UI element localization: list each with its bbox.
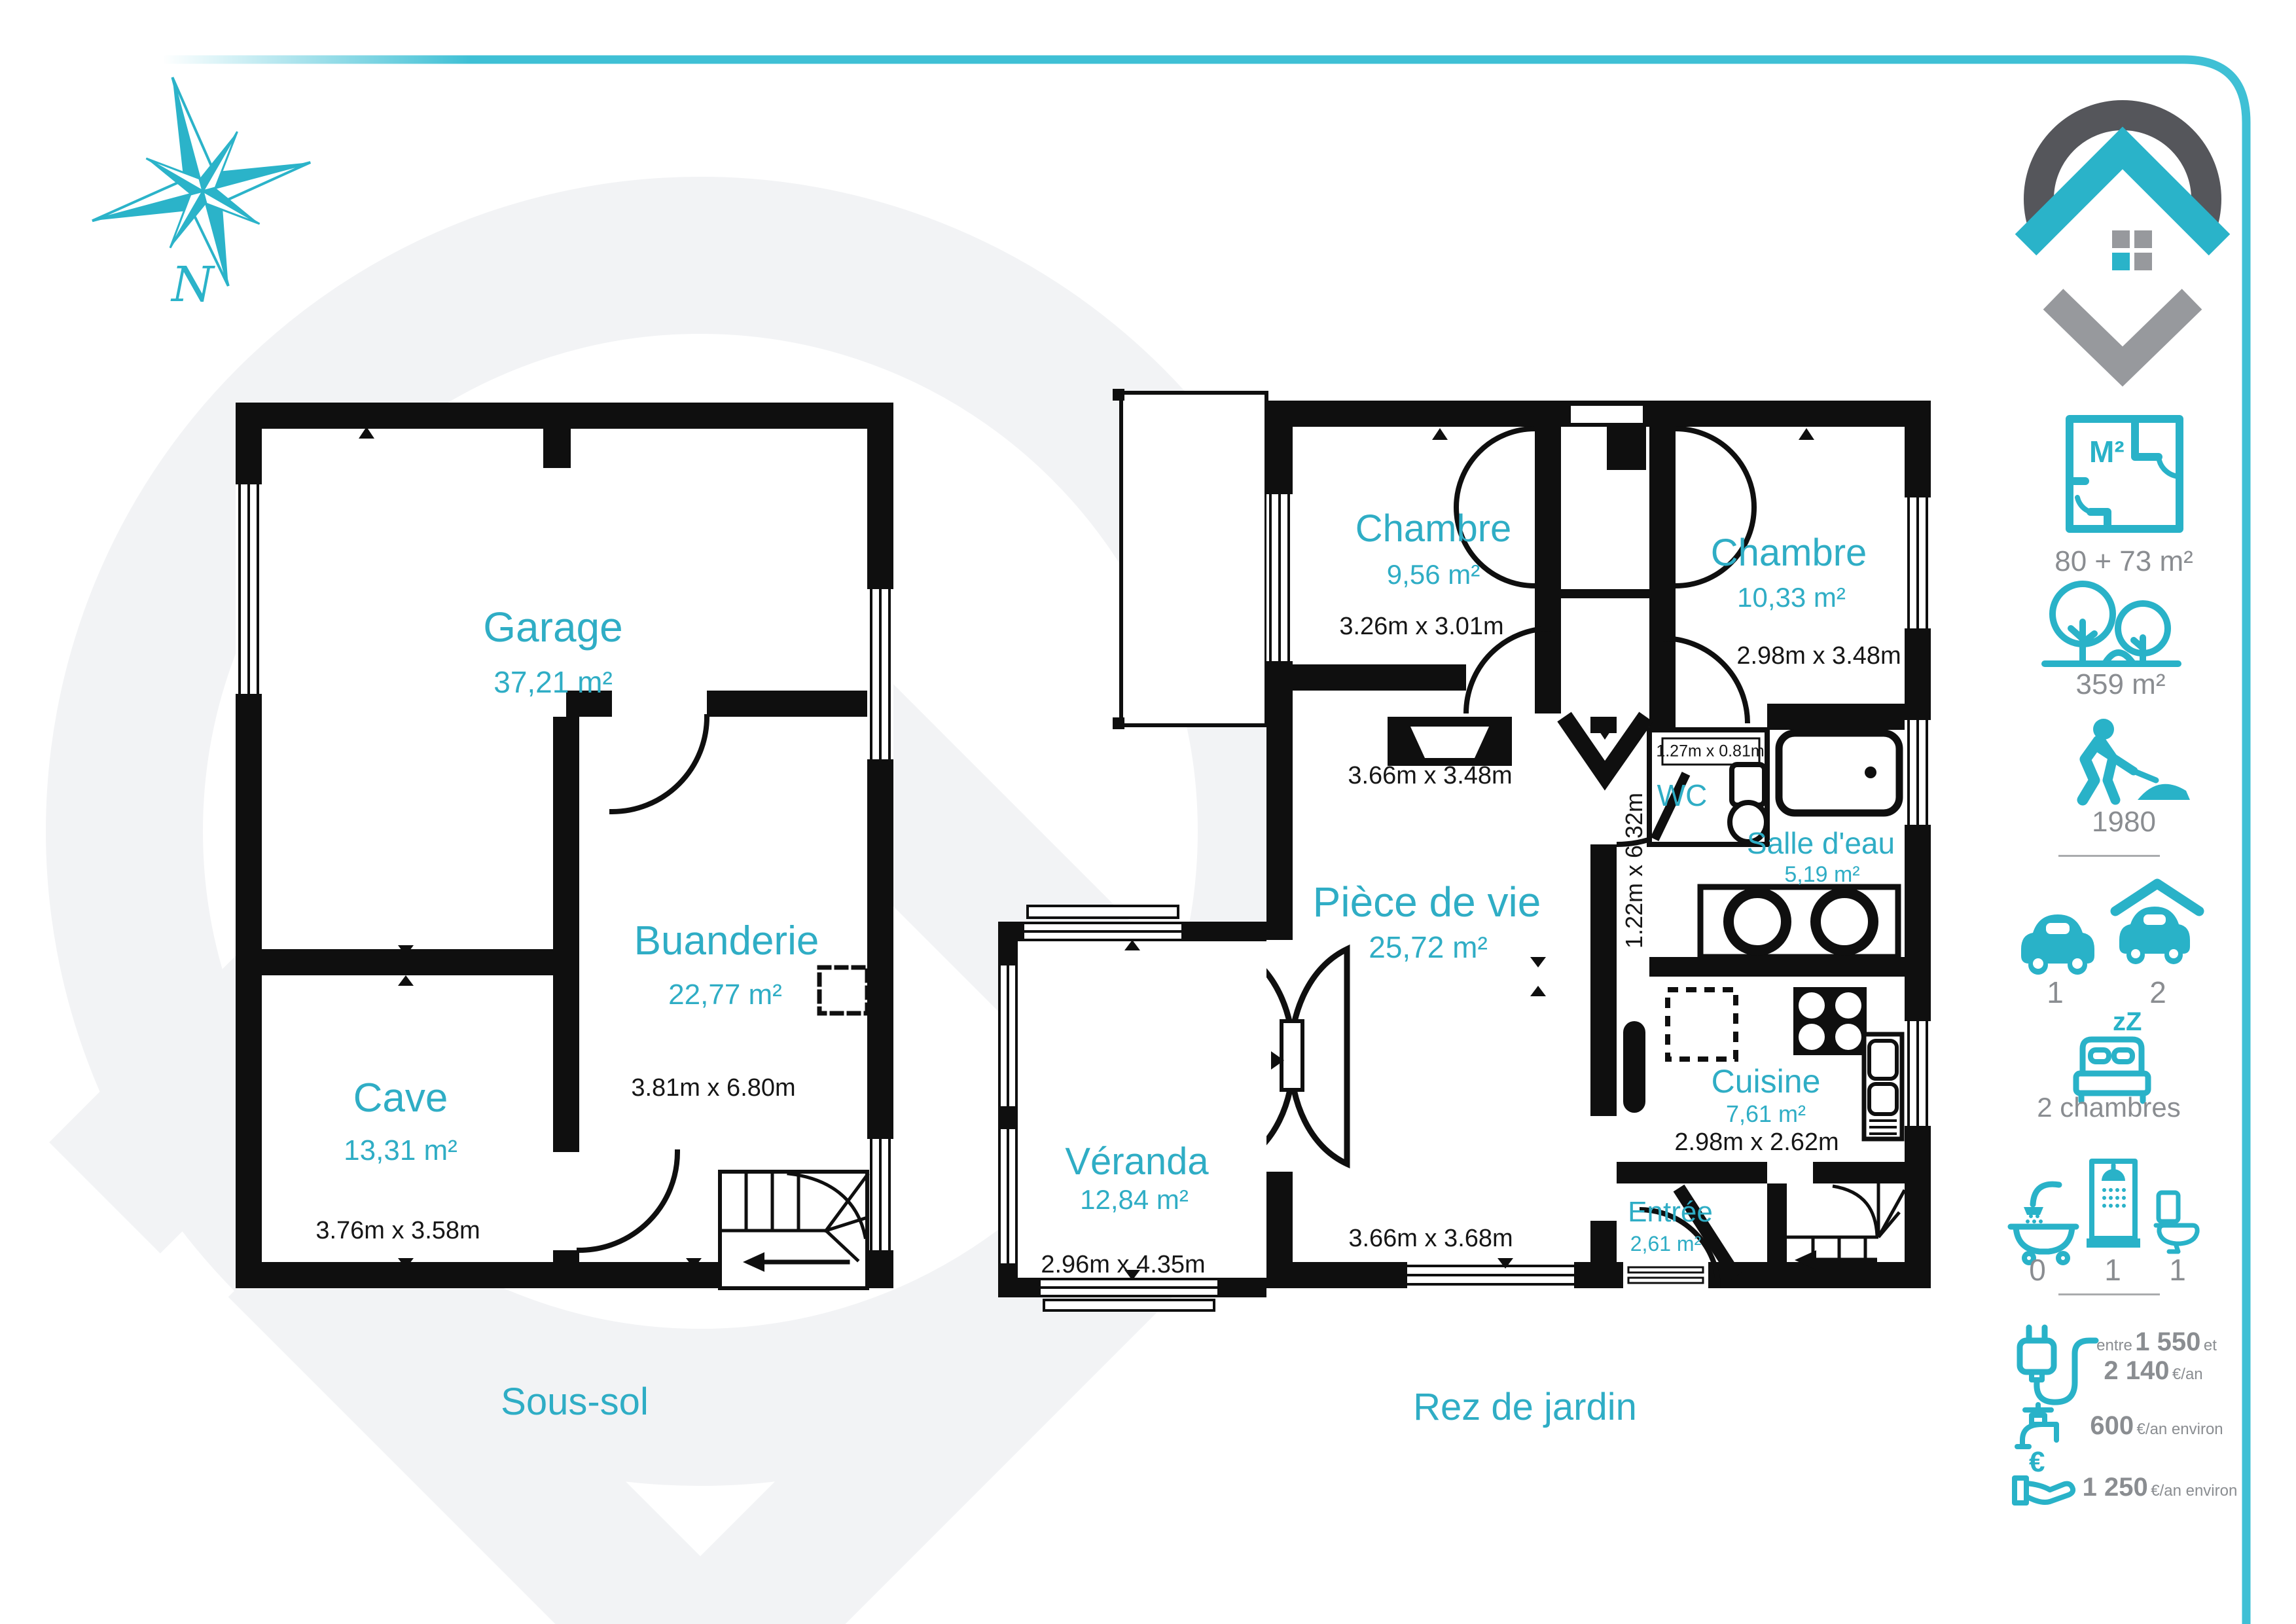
land-area-value: 359 m² xyxy=(2076,670,2166,699)
energy-low: 1 550 xyxy=(2135,1327,2200,1356)
room-label-buanderie: Buanderie xyxy=(634,921,819,962)
room-dim-cave: 3.76m x 3.58m xyxy=(315,1218,480,1243)
tax-cost: 1 250 €/an environ xyxy=(2083,1474,2238,1500)
garden-trees-icon xyxy=(2045,584,2178,664)
room-label-chambre1: Chambre xyxy=(1355,510,1512,548)
compass-north-label: N xyxy=(170,257,215,313)
room-dim-chambre2: 2.98m x 3.48m xyxy=(1736,643,1901,668)
car-icon xyxy=(2021,914,2094,975)
sidebar-divider-2 xyxy=(2058,1293,2160,1295)
floorplan-page: N xyxy=(0,0,2296,1624)
floor-title-sous-sol: Sous-sol xyxy=(501,1383,649,1421)
room-area-piece-de-vie: 25,72 m² xyxy=(1369,932,1488,962)
room-area-garage: 37,21 m² xyxy=(493,667,613,697)
room-label-wc: WC xyxy=(1657,780,1708,810)
construction-year-value: 1980 xyxy=(2092,808,2156,837)
room-area-buanderie: 22,77 m² xyxy=(668,981,782,1009)
energy-conj: et xyxy=(2204,1337,2217,1354)
room-area-entree: 2,61 m² xyxy=(1630,1233,1701,1254)
room-dim-cuisine: 2.98m x 2.62m xyxy=(1674,1130,1839,1155)
room-area-chambre1: 9,56 m² xyxy=(1387,561,1480,588)
toilet-count: 1 xyxy=(2169,1255,2186,1285)
bathtub-count: 0 xyxy=(2029,1255,2046,1285)
water-cost: 600 €/an environ xyxy=(2090,1413,2223,1439)
sidebar-divider-1 xyxy=(2058,855,2160,857)
electricity-plug-icon xyxy=(2020,1327,2096,1402)
room-label-chambre2: Chambre xyxy=(1711,534,1867,572)
floorplan-icon: M² xyxy=(2070,419,2179,529)
water-value: 600 xyxy=(2090,1411,2134,1440)
room-dim-piece-top: 3.66m x 3.48m xyxy=(1348,763,1512,788)
room-label-cuisine: Cuisine xyxy=(1712,1065,1821,1098)
energy-high: 2 140 xyxy=(2104,1356,2169,1385)
toilet-icon xyxy=(2156,1193,2197,1252)
bathtub-fixture xyxy=(1779,733,1899,813)
construction-year-icon xyxy=(2083,719,2190,800)
svg-text:M²: M² xyxy=(2089,435,2125,469)
veranda-structure xyxy=(998,906,1266,1310)
money-hand-icon: € xyxy=(2015,1446,2073,1503)
door-leaf-capsule xyxy=(1623,1021,1645,1113)
energy-unit: €/an xyxy=(2172,1365,2203,1383)
kitchen-sink-icon xyxy=(1864,1034,1902,1139)
garage-car-icon xyxy=(2115,884,2199,964)
room-label-piece-de-vie: Pièce de vie xyxy=(1313,881,1541,923)
room-label-entree: Entrée xyxy=(1628,1198,1713,1227)
room-area-cuisine: 7,61 m² xyxy=(1726,1102,1806,1126)
water-unit: €/an environ xyxy=(2137,1420,2223,1438)
floor-title-rez-de-jardin: Rez de jardin xyxy=(1413,1388,1637,1426)
room-area-cave: 13,31 m² xyxy=(344,1136,457,1165)
room-label-cave: Cave xyxy=(353,1078,448,1119)
water-faucet-icon xyxy=(2017,1405,2056,1447)
plan-sous-sol xyxy=(236,403,893,1288)
energy-cost-line1: entre 1 550 et xyxy=(2096,1329,2217,1355)
room-dim-piece-bottom: 3.66m x 3.68m xyxy=(1348,1226,1513,1251)
room-dim-wc: 1.27m x 0.81m xyxy=(1656,744,1764,760)
surface-value: 80 + 73 m² xyxy=(2054,547,2193,576)
bedrooms-value: 2 chambres xyxy=(2037,1094,2180,1121)
room-dim-veranda: 2.96m x 4.35m xyxy=(1041,1252,1205,1277)
room-area-veranda: 12,84 m² xyxy=(1080,1186,1189,1214)
room-area-salle-deau: 5,19 m² xyxy=(1784,863,1859,886)
room-label-veranda: Véranda xyxy=(1065,1143,1208,1181)
room-area-chambre2: 10,33 m² xyxy=(1737,584,1846,611)
duct xyxy=(1570,405,1644,424)
vanity-double-basin xyxy=(1700,887,1898,957)
energy-prefix: entre xyxy=(2096,1337,2132,1354)
svg-text:€: € xyxy=(2029,1446,2045,1478)
shower-icon xyxy=(2087,1161,2140,1248)
svg-text:zZ: zZ xyxy=(2113,1007,2142,1036)
parking-outdoor-count: 1 xyxy=(2047,977,2064,1007)
room-dim-chambre1: 3.26m x 3.01m xyxy=(1339,614,1503,639)
room-dim-buanderie: 3.81m x 6.80m xyxy=(631,1075,795,1100)
brand-logo-icon xyxy=(2026,115,2219,367)
parking-garage-count: 2 xyxy=(2149,977,2166,1007)
plan-drawing: N xyxy=(0,0,2296,1624)
terrace-outline xyxy=(1113,389,1266,729)
sous-sol-stairs xyxy=(720,1172,867,1288)
tax-unit: €/an environ xyxy=(2151,1482,2237,1500)
room-dim-hallway: 1.22m x 6.32m xyxy=(1623,793,1646,948)
appliance-dashed-icon xyxy=(1668,990,1736,1059)
room-label-garage: Garage xyxy=(483,606,622,648)
shower-count: 1 xyxy=(2104,1255,2121,1285)
toilet-icon xyxy=(1732,765,1765,805)
energy-cost-line2: 2 140 €/an xyxy=(2104,1358,2202,1384)
room-label-salle-deau: Salle d'eau xyxy=(1747,828,1895,858)
bed-icon: zZ xyxy=(2076,1007,2148,1101)
tax-value: 1 250 xyxy=(2083,1473,2148,1502)
bathtub-icon xyxy=(2011,1184,2076,1263)
